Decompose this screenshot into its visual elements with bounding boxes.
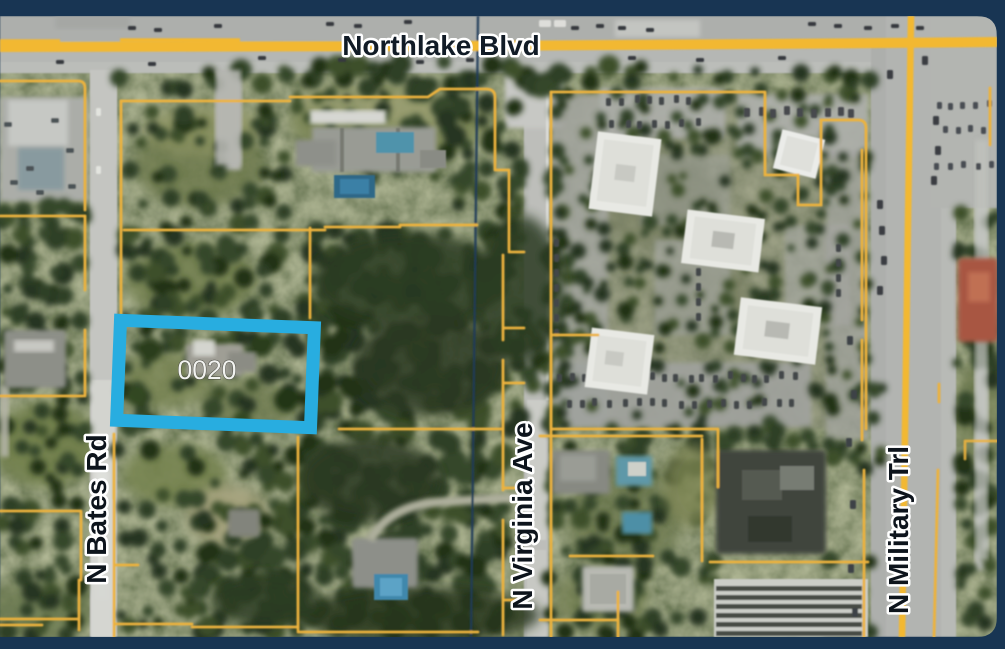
- svg-text:N Bates Rd: N Bates Rd: [81, 434, 112, 583]
- svg-text:Northlake Blvd: Northlake Blvd: [342, 30, 540, 61]
- svg-text:0020: 0020: [178, 355, 237, 385]
- svg-text:N Military Trl: N Military Trl: [883, 446, 914, 614]
- svg-text:N Virginia Ave: N Virginia Ave: [507, 422, 538, 609]
